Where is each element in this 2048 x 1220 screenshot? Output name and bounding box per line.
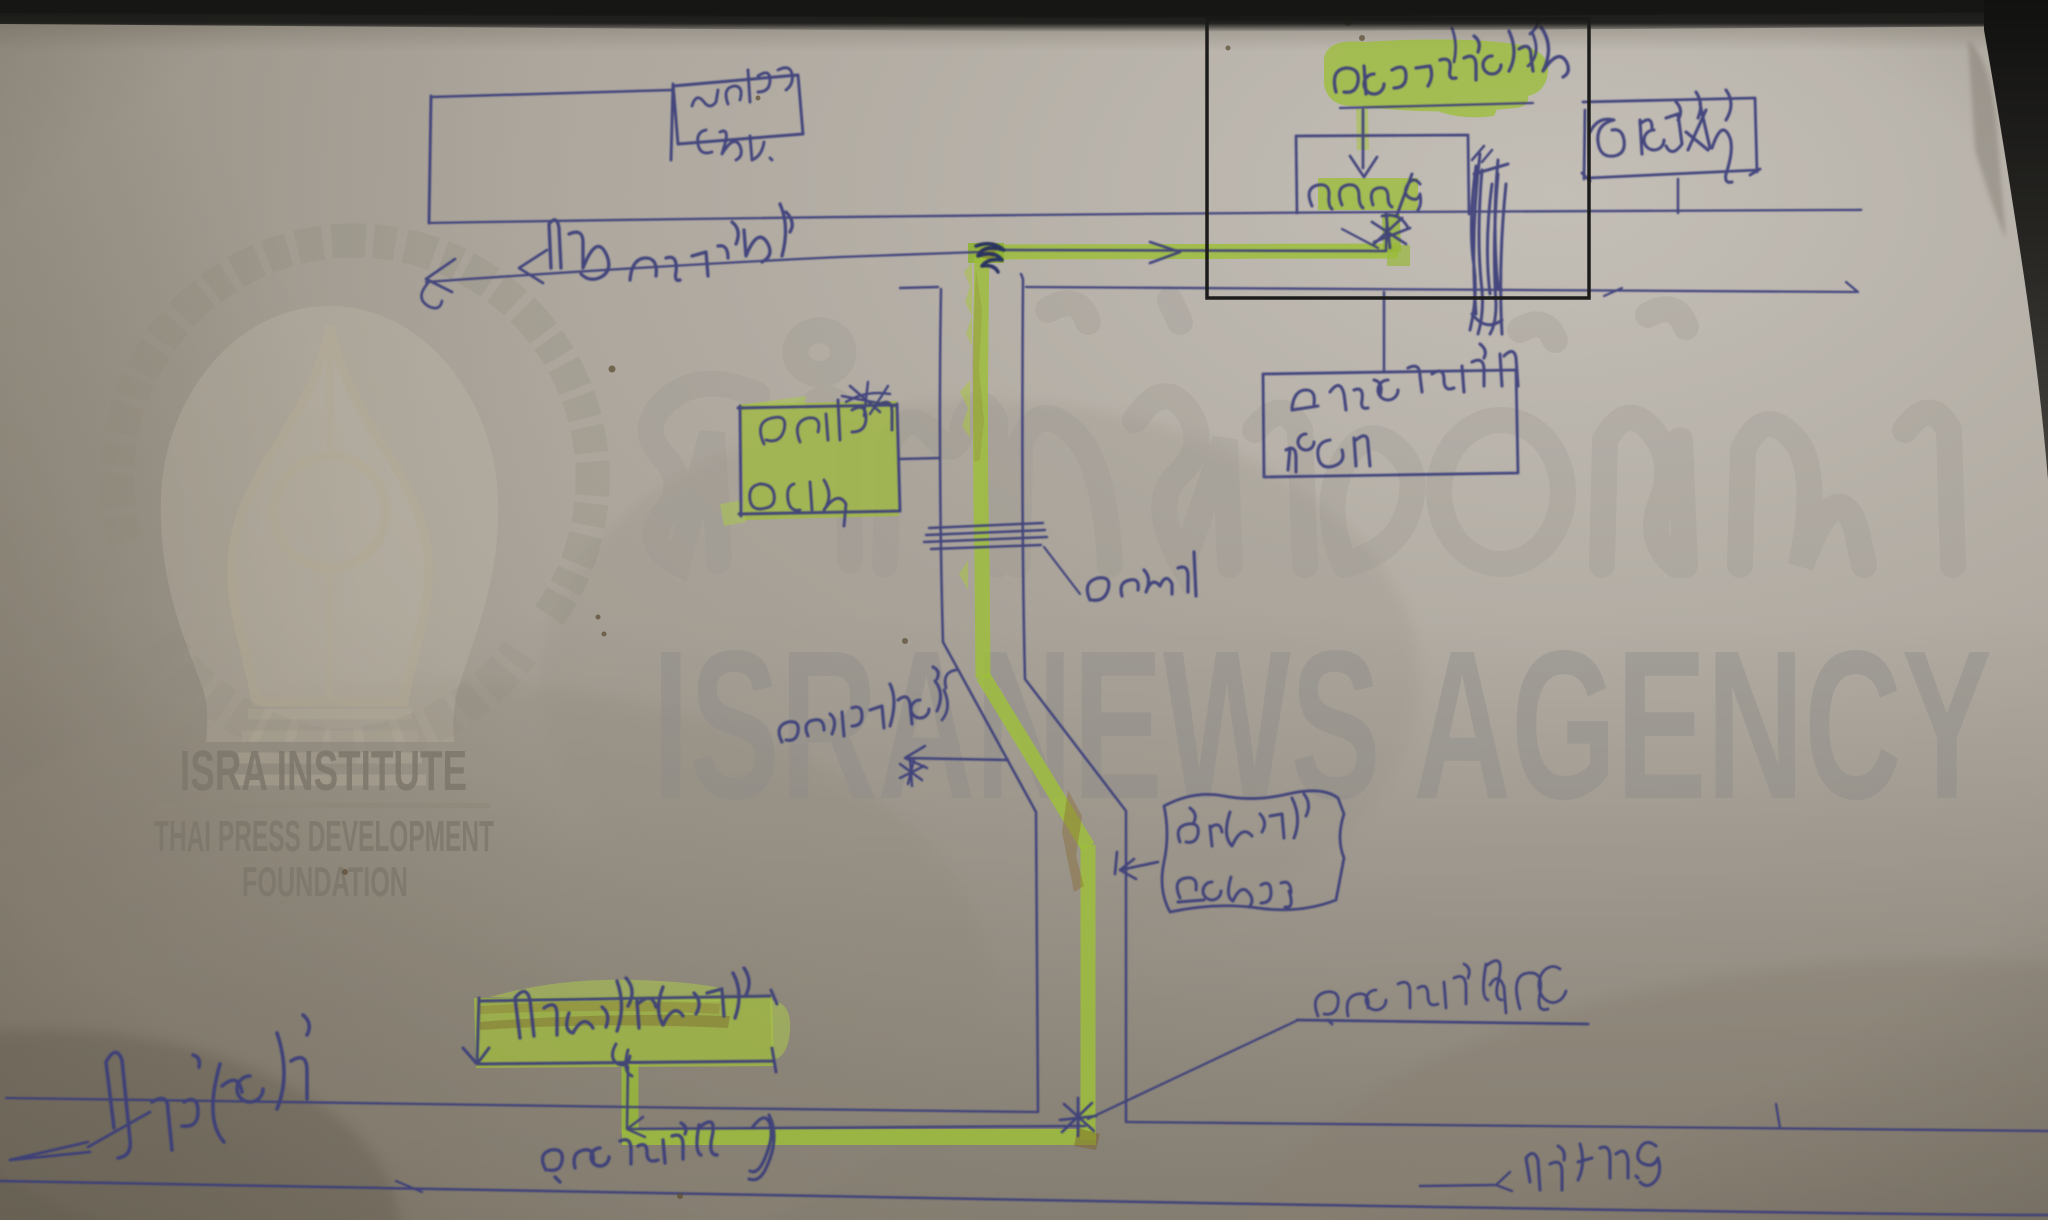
svg-text:ISRA INSTITUTE: ISRA INSTITUTE (180, 739, 467, 803)
svg-text:FOUNDATION: FOUNDATION (242, 858, 408, 905)
svg-text:THAI PRESS DEVELOPMENT: THAI PRESS DEVELOPMENT (154, 812, 494, 861)
